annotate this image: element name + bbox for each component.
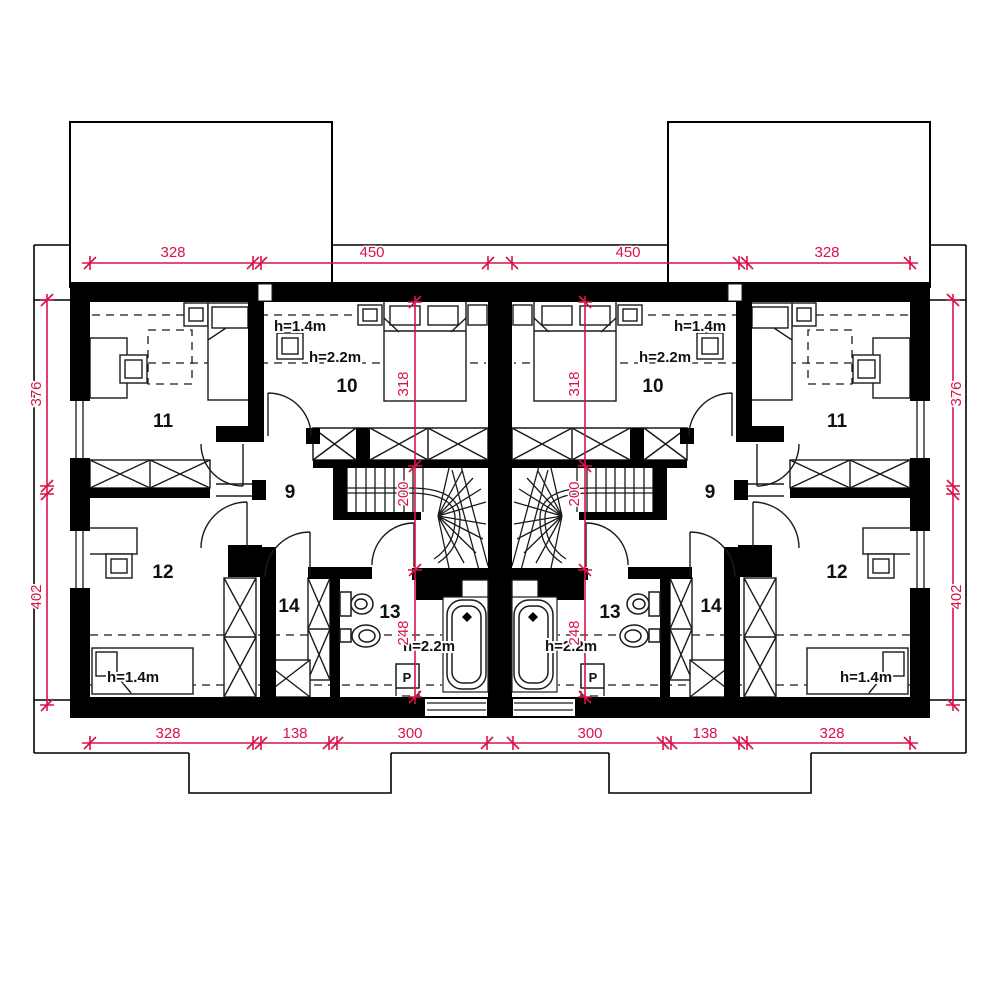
dimension-value-bottom: 138	[282, 725, 307, 742]
dimension-value-bottom: 328	[819, 725, 844, 742]
dimension-value-interior: 318	[395, 371, 412, 396]
room-number-13-left: 13	[379, 602, 400, 623]
dimension-value-bottom: 300	[397, 725, 422, 742]
dimension-value-interior: 248	[566, 620, 583, 645]
dimension-value-right_side: 376	[948, 381, 965, 406]
room-number-10-right: 10	[642, 376, 663, 397]
unit-right-mirrored	[500, 122, 966, 793]
dimension-value-bottom: 300	[577, 725, 602, 742]
unit-left	[34, 122, 500, 793]
floor-plan-drawing: 9101112131491011121314h=1.4mh=2.2mh=1.4m…	[0, 0, 1000, 1000]
height-annotation: h=1.4m	[674, 318, 726, 335]
height-annotation: h=1.4m	[107, 669, 159, 686]
room-number-14-left: 14	[278, 596, 300, 617]
dimension-value-right_side: 402	[948, 584, 965, 609]
dimension-value-interior: 248	[395, 620, 412, 645]
room-number-9-left: 9	[285, 482, 296, 503]
room-number-14-right: 14	[700, 596, 722, 617]
room-number-10-left: 10	[336, 376, 357, 397]
room-number-11-right: 11	[827, 411, 848, 432]
washing-machine-label: P	[403, 670, 412, 685]
dimension-value-top: 450	[359, 244, 384, 261]
height-annotation: h=1.4m	[840, 669, 892, 686]
dimension-value-bottom: 138	[692, 725, 717, 742]
dimension-value-top: 328	[814, 244, 839, 261]
washing-machine-label: P	[589, 670, 598, 685]
room-number-11-left: 11	[153, 411, 174, 432]
height-annotation: h=2.2m	[639, 349, 691, 366]
floor-plan-page: 9101112131491011121314h=1.4mh=2.2mh=1.4m…	[0, 0, 1000, 1000]
room-number-12-left: 12	[152, 562, 173, 583]
dimension-value-left_side: 402	[28, 584, 45, 609]
dimension-value-left_side: 376	[28, 381, 45, 406]
dimension-value-top: 328	[160, 244, 185, 261]
room-number-13-right: 13	[599, 602, 620, 623]
dimension-value-interior: 318	[566, 371, 583, 396]
dimension-value-interior: 200	[566, 481, 583, 506]
dimension-value-bottom: 328	[155, 725, 180, 742]
height-annotation: h=2.2m	[309, 349, 361, 366]
room-number-12-right: 12	[826, 562, 847, 583]
room-number-9-right: 9	[705, 482, 716, 503]
dimension-value-interior: 200	[395, 481, 412, 506]
dimension-value-top: 450	[615, 244, 640, 261]
height-annotation: h=1.4m	[274, 318, 326, 335]
